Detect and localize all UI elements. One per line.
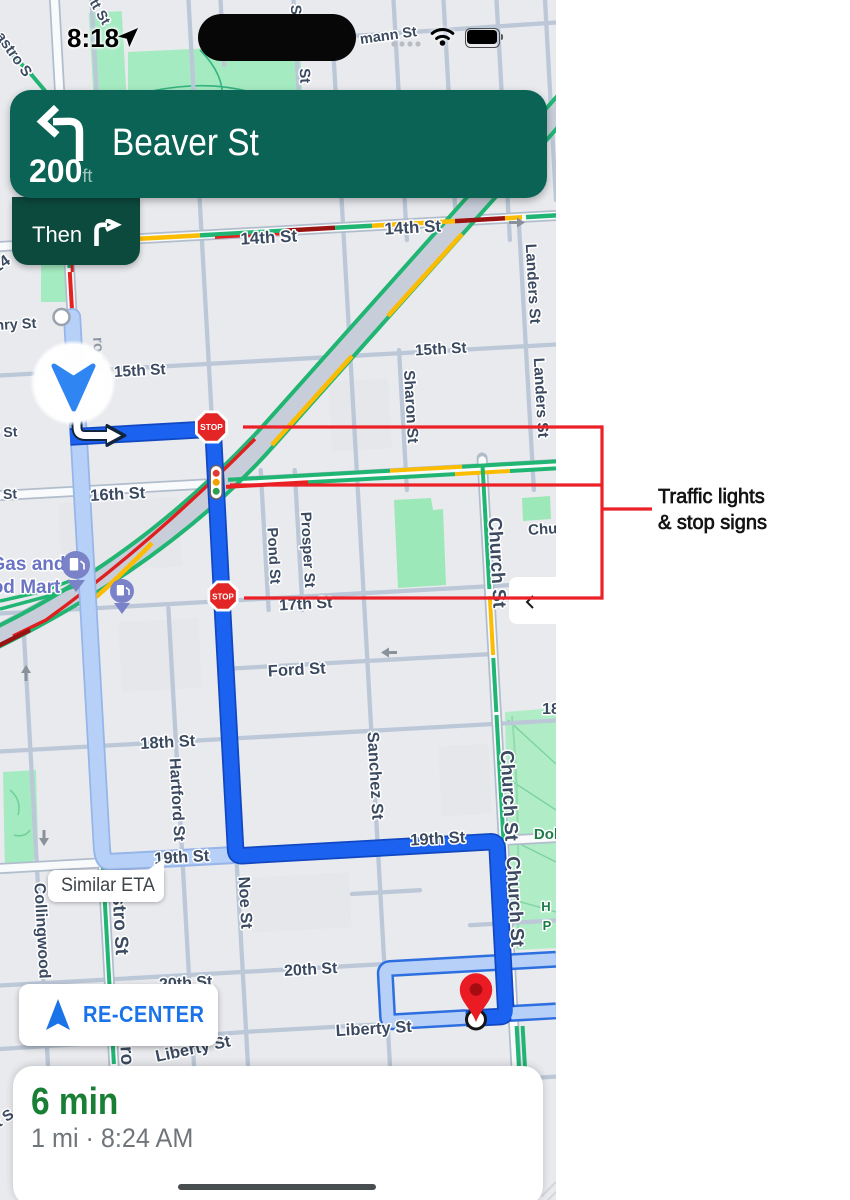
svg-text:15th St: 15th St — [113, 361, 166, 381]
svg-text:H: H — [541, 899, 550, 914]
svg-text:Gas and: Gas and — [0, 554, 65, 575]
svg-text:r St: r St — [0, 423, 18, 440]
svg-text:18: 18 — [542, 701, 556, 718]
svg-text:P: P — [543, 918, 552, 933]
svg-text:STOP: STOP — [200, 422, 223, 432]
svg-text:14th St: 14th St — [240, 226, 298, 248]
svg-text:nry St: nry St — [0, 316, 37, 334]
svg-text:t St: t St — [0, 485, 18, 502]
svg-text:Dol: Dol — [534, 826, 556, 843]
svg-text:16th St: 16th St — [90, 484, 146, 505]
svg-text:20th St: 20th St — [284, 960, 339, 980]
svg-text:STOP: STOP — [212, 593, 234, 602]
svg-text:Pond St: Pond St — [263, 527, 283, 585]
svg-text:ro: ro — [115, 1046, 137, 1066]
svg-text:Noe St: Noe St — [235, 876, 256, 930]
svg-text:15th St: 15th St — [414, 340, 467, 360]
svg-text:18th St: 18th St — [140, 732, 196, 753]
svg-text:od Mart: od Mart — [0, 577, 61, 598]
svg-text:Ford St: Ford St — [267, 659, 326, 680]
svg-text:19th St: 19th St — [410, 828, 466, 849]
svg-text:14th St: 14th St — [384, 216, 442, 238]
svg-text:St: St — [296, 68, 314, 84]
svg-text:Chu: Chu — [528, 520, 556, 539]
svg-text:17th St: 17th St — [279, 594, 334, 614]
